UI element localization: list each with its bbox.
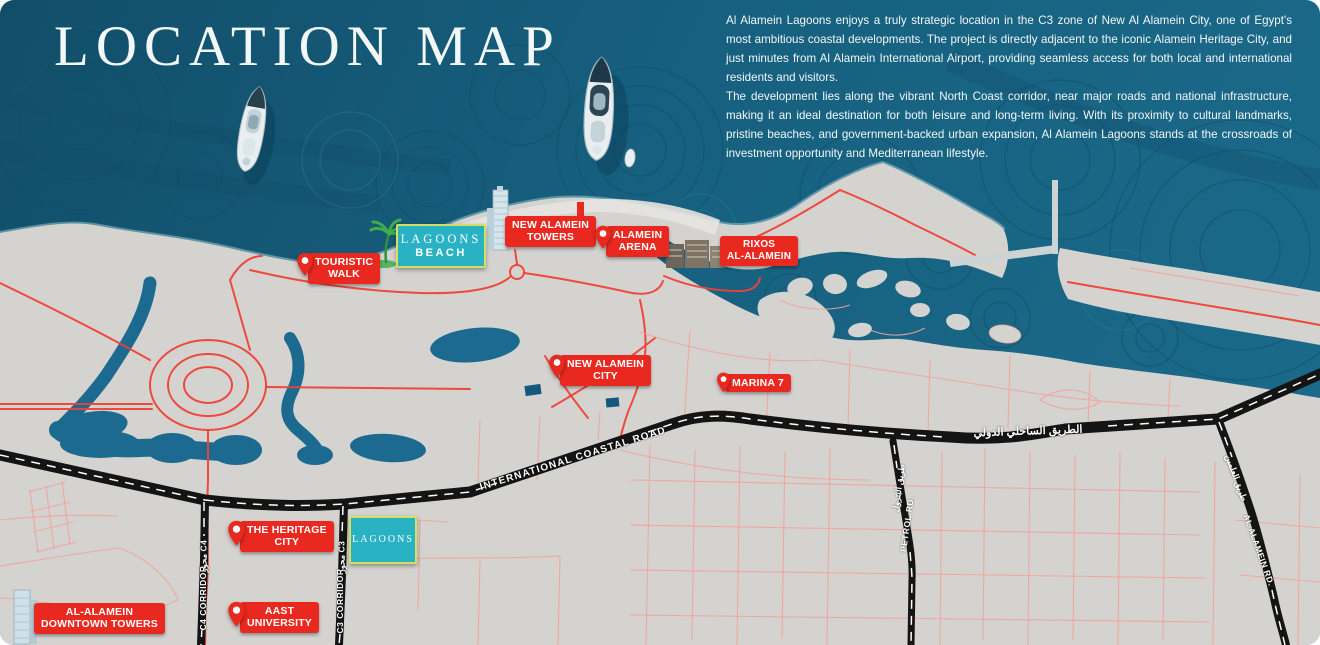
yacht-icon <box>231 85 283 188</box>
map-pin-icon <box>548 354 566 379</box>
yacht-icon <box>581 57 631 177</box>
marker-label: TOURISTICWALK <box>308 253 380 284</box>
marker-label: AL-ALAMEINDOWNTOWN TOWERS <box>34 603 165 634</box>
marker-alamein-arena: ALAMEINARENA <box>594 225 669 257</box>
marker-label: THE HERITAGECITY <box>240 521 334 552</box>
intro-paragraph-2: The development lies along the vibrant N… <box>726 87 1292 163</box>
marker-aast-university: AASTUNIVERSITY <box>227 601 319 633</box>
lagoons-beach-title: LAGOONS <box>398 232 484 247</box>
map-pin-icon <box>227 520 246 547</box>
lagoons-beach-badge: LAGOONS BEACH <box>396 224 486 268</box>
marker-label: ALAMEINARENA <box>606 226 669 257</box>
marker-label: AASTUNIVERSITY <box>240 602 319 633</box>
marker-label: NEW ALAMEINCITY <box>560 355 651 386</box>
dinghy-icon <box>624 148 636 167</box>
map-pin-icon <box>296 252 314 277</box>
intro-paragraph-1: Al Alamein Lagoons enjoys a truly strate… <box>726 11 1292 87</box>
marker-label: NEW ALAMEINTOWERS <box>505 216 596 247</box>
marker-rixos-al-alamein: RIXOSAL-ALAMEIN <box>720 235 798 266</box>
intro-text: Al Alamein Lagoons enjoys a truly strate… <box>726 11 1292 163</box>
marker-label: RIXOSAL-ALAMEIN <box>720 236 798 266</box>
map-pin-icon <box>716 372 731 393</box>
page-title: LOCATION MAP <box>54 14 561 79</box>
marker-the-heritage-city: THE HERITAGECITY <box>227 520 334 552</box>
marina-strip <box>1058 248 1320 345</box>
marker-new-alamein-city: NEW ALAMEINCITY <box>548 354 651 386</box>
location-map-page: LOCATION MAP Al Alamein Lagoons enjoys a… <box>0 0 1320 645</box>
marker-marina-7: MARINA 7 <box>716 372 791 393</box>
lagoons-site-badge: LAGOONS <box>349 516 417 564</box>
marker-label: MARINA 7 <box>725 374 791 392</box>
road-label-c3-corridor: C3 CORRIDOR <box>335 568 345 633</box>
road-label-c4-corridor: C4 CORRIDOR <box>198 565 208 630</box>
map-pin-icon <box>227 601 246 628</box>
marker-al-alamein-downtown-towers: AL-ALAMEINDOWNTOWN TOWERS <box>34 602 165 634</box>
map-pin-icon <box>594 225 612 250</box>
lagoons-beach-subtitle: BEACH <box>398 247 484 261</box>
marker-touristic-walk: TOURISTICWALK <box>296 252 380 284</box>
lagoons-site-title: LAGOONS <box>351 534 415 546</box>
marker-new-alamein-towers: NEW ALAMEINTOWERS <box>505 215 596 247</box>
